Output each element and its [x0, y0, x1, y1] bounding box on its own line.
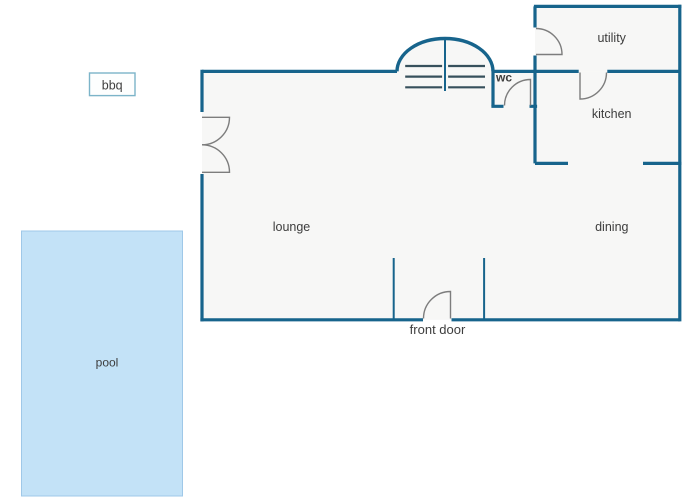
svg-text:bbq: bbq: [102, 79, 123, 93]
svg-text:dining: dining: [595, 220, 628, 234]
svg-text:front door: front door: [410, 322, 466, 337]
svg-text:kitchen: kitchen: [592, 107, 632, 121]
svg-text:wc: wc: [495, 71, 512, 85]
svg-text:lounge: lounge: [273, 220, 311, 234]
svg-text:utility: utility: [597, 31, 626, 45]
svg-text:pool: pool: [96, 356, 119, 370]
